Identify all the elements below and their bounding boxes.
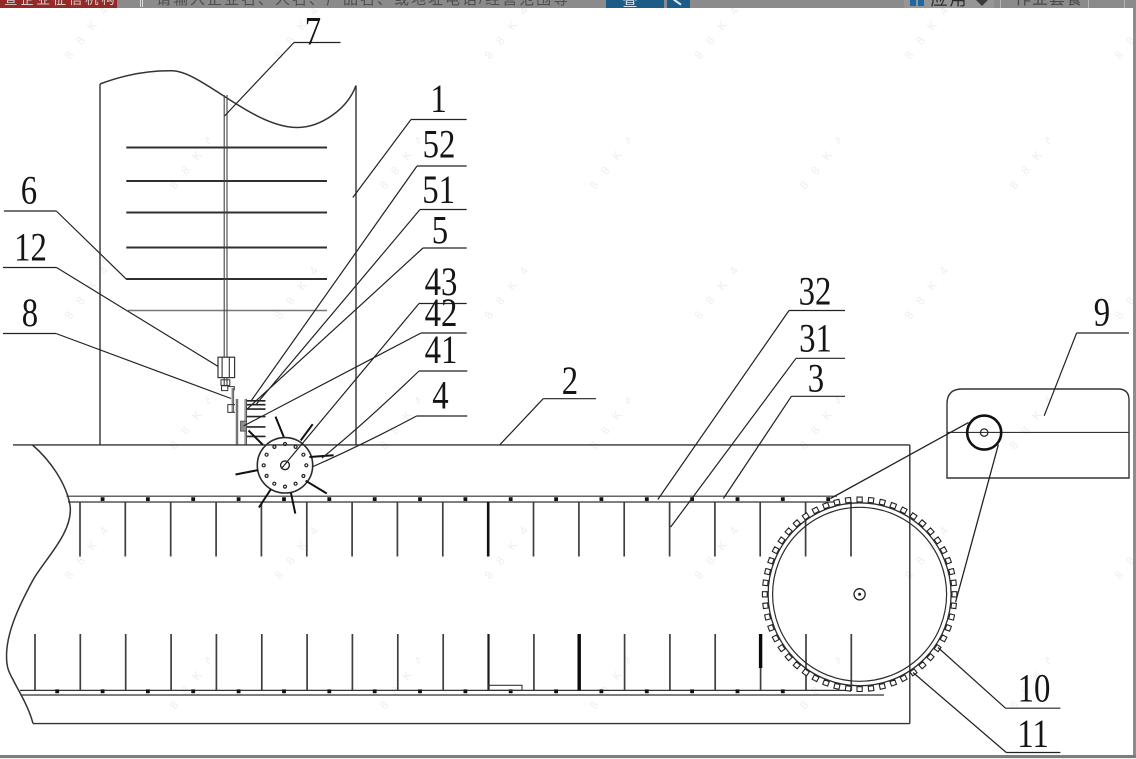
svg-text:3: 3 bbox=[808, 355, 824, 400]
svg-text:5: 5 bbox=[432, 207, 448, 252]
svg-text:41: 41 bbox=[425, 327, 458, 372]
svg-text:10: 10 bbox=[1018, 665, 1051, 710]
svg-text:7: 7 bbox=[305, 8, 321, 53]
svg-text:51: 51 bbox=[422, 167, 455, 212]
svg-text:8: 8 bbox=[22, 290, 38, 335]
svg-text:9: 9 bbox=[1094, 289, 1110, 334]
svg-text:6: 6 bbox=[21, 167, 37, 212]
svg-text:32: 32 bbox=[799, 268, 832, 313]
svg-text:52: 52 bbox=[423, 121, 456, 166]
svg-text:2: 2 bbox=[562, 358, 578, 403]
svg-text:12: 12 bbox=[14, 224, 47, 269]
svg-text:4: 4 bbox=[432, 372, 448, 417]
svg-text:31: 31 bbox=[799, 315, 832, 360]
svg-text:11: 11 bbox=[1017, 711, 1049, 756]
svg-text:1: 1 bbox=[430, 76, 446, 121]
